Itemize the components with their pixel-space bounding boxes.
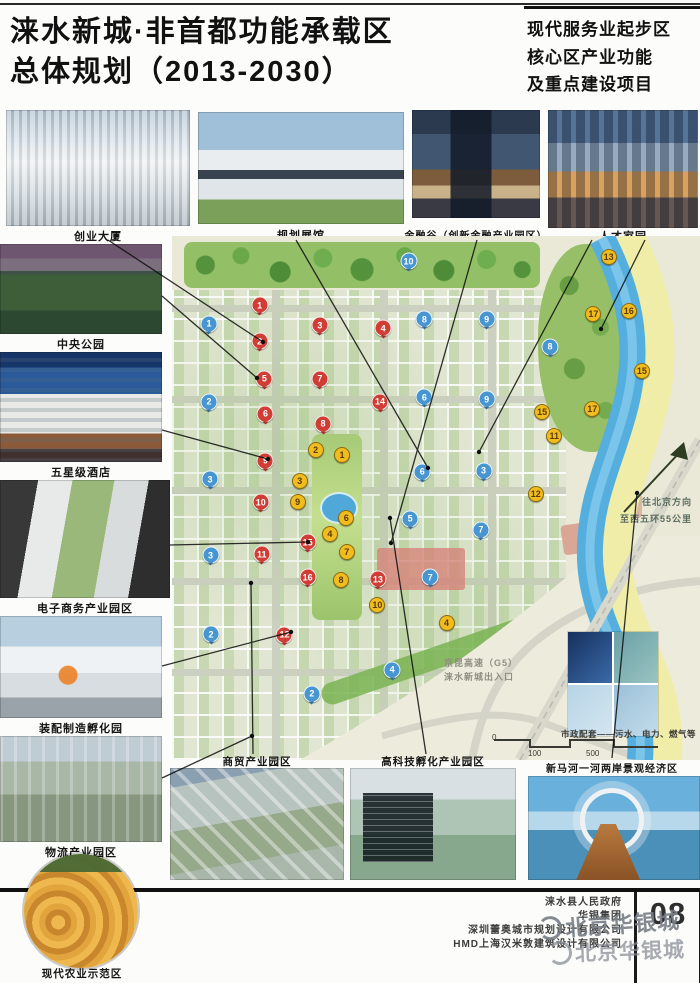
poster-subtitle: 现代服务业起步区 核心区产业功能 及重点建设项目 xyxy=(527,16,699,99)
photo-ecommerce-park xyxy=(0,480,170,598)
caption-assembly-park: 装配制造孵化园 xyxy=(0,720,162,736)
map-marker-yellow-7: 7 xyxy=(339,544,355,560)
map-marker-red-14: 14 xyxy=(372,393,389,410)
subtitle-line1: 现代服务业起步区 xyxy=(527,16,699,44)
map-marker-blue-4: 4 xyxy=(384,661,401,678)
map-marker-blue-10: 10 xyxy=(400,253,417,270)
map-marker-blue-3: 3 xyxy=(202,471,219,488)
map-marker-yellow-6: 6 xyxy=(338,510,354,526)
photo-logistics-park xyxy=(0,736,162,842)
photo-trade-park xyxy=(170,768,344,880)
map-marker-red-6: 6 xyxy=(257,405,274,422)
map-marker-red-10: 10 xyxy=(252,494,269,511)
map-marker-yellow-16: 16 xyxy=(621,303,637,319)
map-marker-yellow-17: 17 xyxy=(584,401,600,417)
map-marker-red-9: 9 xyxy=(257,452,274,469)
map-marker-blue-3: 3 xyxy=(202,547,219,564)
map-marker-red-7: 7 xyxy=(311,370,328,387)
map-marker-blue-2: 2 xyxy=(203,626,220,643)
map-marker-red-3: 3 xyxy=(311,317,328,334)
map-marker-red-5: 5 xyxy=(256,370,273,387)
page-number-box: 08 xyxy=(634,892,700,983)
photo-talent-home xyxy=(548,110,698,228)
map-marker-blue-8: 8 xyxy=(416,311,433,328)
planning-poster: 涞水新城·非首都功能承载区 总体规划（2013-2030） 现代服务业起步区 核… xyxy=(0,0,700,983)
credit-planner: 深圳蕾奥城市规划设计有限公司 xyxy=(453,924,622,938)
photo-hitech-park xyxy=(350,768,516,880)
credit-architect: HMD上海汉米敦建筑设计有限公司 xyxy=(453,938,622,952)
map-marker-yellow-13: 13 xyxy=(601,249,617,265)
map-marker-yellow-1: 1 xyxy=(334,447,350,463)
photo-venture-building xyxy=(6,110,190,226)
map-marker-blue-7: 7 xyxy=(422,569,439,586)
map-marker-red-16: 16 xyxy=(299,569,316,586)
master-plan-map: 市政配套——污水、电力、燃气等 往北京方向 至西五环55公里 京昆高速（G5） … xyxy=(172,236,700,760)
caption-central-park: 中央公园 xyxy=(0,336,162,352)
subtitle-line2: 核心区产业功能 xyxy=(527,44,699,72)
map-marker-blue-9: 9 xyxy=(478,391,495,408)
map-marker-blue-6: 6 xyxy=(414,463,431,480)
map-marker-blue-3: 3 xyxy=(475,462,492,479)
map-marker-red-15: 15 xyxy=(299,534,316,551)
map-marker-blue-7: 7 xyxy=(472,521,489,538)
map-marker-yellow-11: 11 xyxy=(546,428,562,444)
header-right-rule xyxy=(524,6,700,9)
map-markers: 1234567891011121314151612332108969635778… xyxy=(172,236,700,760)
credit-group: 华银集团 xyxy=(453,910,622,924)
map-marker-yellow-4: 4 xyxy=(439,615,455,631)
map-marker-blue-6: 6 xyxy=(416,389,433,406)
map-marker-yellow-15: 15 xyxy=(634,363,650,379)
map-marker-blue-9: 9 xyxy=(478,311,495,328)
page-number: 08 xyxy=(650,896,686,983)
subtitle-line3: 及重点建设项目 xyxy=(527,71,699,99)
caption-hotel: 五星级酒店 xyxy=(0,464,162,480)
map-marker-blue-2: 2 xyxy=(303,685,320,702)
credits-block: 涞水县人民政府 华银集团 深圳蕾奥城市规划设计有限公司 HMD上海汉米敦建筑设计… xyxy=(453,896,622,952)
map-marker-yellow-8: 8 xyxy=(333,572,349,588)
hitech-text-panel xyxy=(363,793,433,862)
map-marker-blue-1: 1 xyxy=(200,315,217,332)
map-marker-blue-8: 8 xyxy=(542,338,559,355)
map-marker-yellow-17: 17 xyxy=(585,306,601,322)
photo-assembly-park xyxy=(0,616,162,718)
photo-central-park xyxy=(0,244,162,334)
map-marker-yellow-10: 10 xyxy=(369,597,385,613)
caption-ecommerce-park: 电子商务产业园区 xyxy=(0,600,170,616)
credit-government: 涞水县人民政府 xyxy=(453,896,622,910)
map-marker-red-1: 1 xyxy=(251,297,268,314)
map-marker-red-13: 13 xyxy=(369,571,386,588)
map-marker-blue-5: 5 xyxy=(402,510,419,527)
photo-planning-hall xyxy=(198,112,404,224)
poster-title-line1: 涞水新城·非首都功能承载区 xyxy=(10,18,394,47)
poster-title-line2: 总体规划（2013-2030） xyxy=(10,58,353,87)
map-marker-yellow-2: 2 xyxy=(308,442,324,458)
photo-hotel xyxy=(0,352,162,462)
photo-agriculture-zone xyxy=(24,854,138,968)
map-marker-yellow-9: 9 xyxy=(290,494,306,510)
caption-venture-building: 创业大厦 xyxy=(6,228,190,244)
map-marker-blue-2: 2 xyxy=(200,393,217,410)
map-marker-red-4: 4 xyxy=(375,320,392,337)
map-marker-yellow-15: 15 xyxy=(534,404,550,420)
caption-river-belt: 新马河一河两岸景观经济区 xyxy=(524,760,700,775)
photo-finance-valley xyxy=(412,110,540,218)
map-marker-yellow-3: 3 xyxy=(292,473,308,489)
map-marker-red-11: 11 xyxy=(253,546,270,563)
caption-agriculture-zone: 现代农业示范区 xyxy=(2,966,162,981)
map-marker-yellow-12: 12 xyxy=(528,486,544,502)
map-marker-red-8: 8 xyxy=(315,415,332,432)
map-marker-yellow-4: 4 xyxy=(322,526,338,542)
map-marker-red-2: 2 xyxy=(251,333,268,350)
map-marker-red-12: 12 xyxy=(276,626,293,643)
top-rule xyxy=(0,3,700,5)
photo-river-bridge xyxy=(528,776,700,880)
